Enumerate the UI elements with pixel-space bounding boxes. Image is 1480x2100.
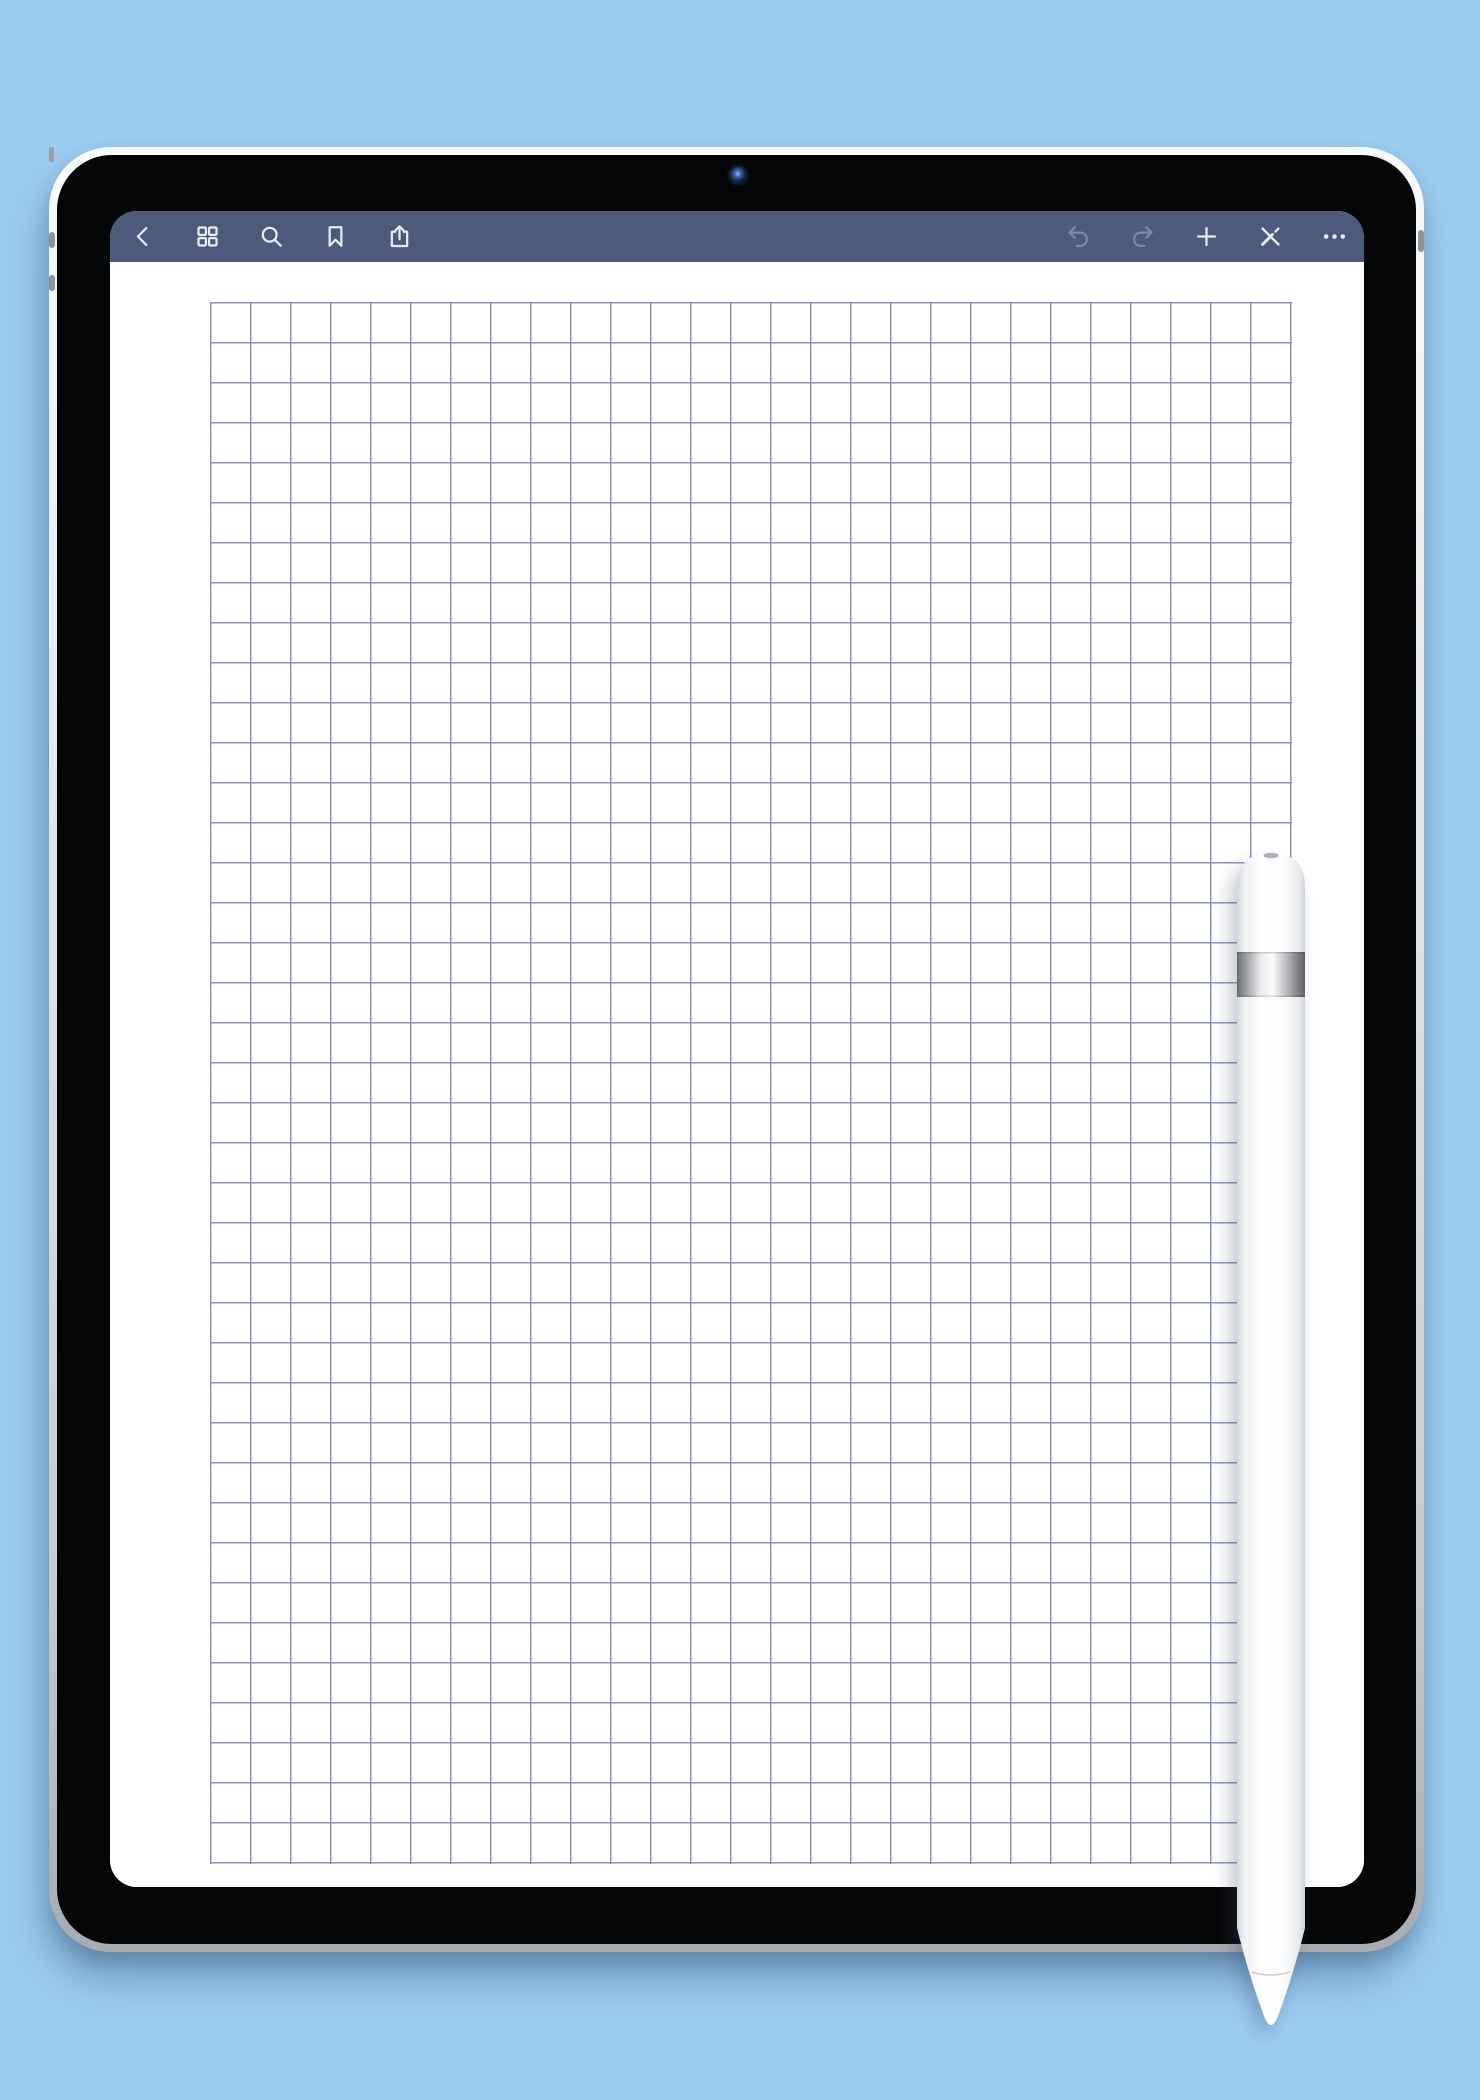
app-toolbar	[110, 211, 1364, 262]
notebook-page[interactable]	[110, 262, 1364, 1887]
stylus-pencil-graphic	[1237, 852, 1305, 2032]
pencil-x-icon[interactable]	[1255, 222, 1285, 252]
bookmark-icon[interactable]	[320, 222, 350, 252]
tablet-device	[49, 147, 1424, 1952]
add-page-icon[interactable]	[1191, 222, 1221, 252]
stylus-cap-nub	[1264, 853, 1279, 859]
redo-icon[interactable]	[1127, 222, 1157, 252]
search-icon[interactable]	[256, 222, 286, 252]
thumbnails-grid-icon[interactable]	[192, 222, 222, 252]
antenna-line	[49, 147, 54, 162]
stylus-pencil	[1237, 852, 1305, 2032]
tablet-bezel	[57, 155, 1416, 1944]
graph-grid	[210, 302, 1292, 1864]
share-icon[interactable]	[384, 222, 414, 252]
volume-down-button	[49, 275, 55, 291]
app-screen	[110, 211, 1364, 1887]
stylus-metal-band	[1237, 952, 1305, 997]
toolbar-left-group	[128, 222, 414, 252]
more-options-icon[interactable]	[1319, 222, 1349, 252]
toolbar-right-group	[1063, 222, 1349, 252]
top-button	[1418, 230, 1424, 252]
stylus-body	[1237, 853, 1305, 2025]
undo-icon[interactable]	[1063, 222, 1093, 252]
volume-up-button	[49, 232, 55, 248]
scene-background	[0, 0, 1480, 2100]
front-camera-icon	[730, 167, 746, 183]
back-chevron-icon[interactable]	[128, 222, 158, 252]
